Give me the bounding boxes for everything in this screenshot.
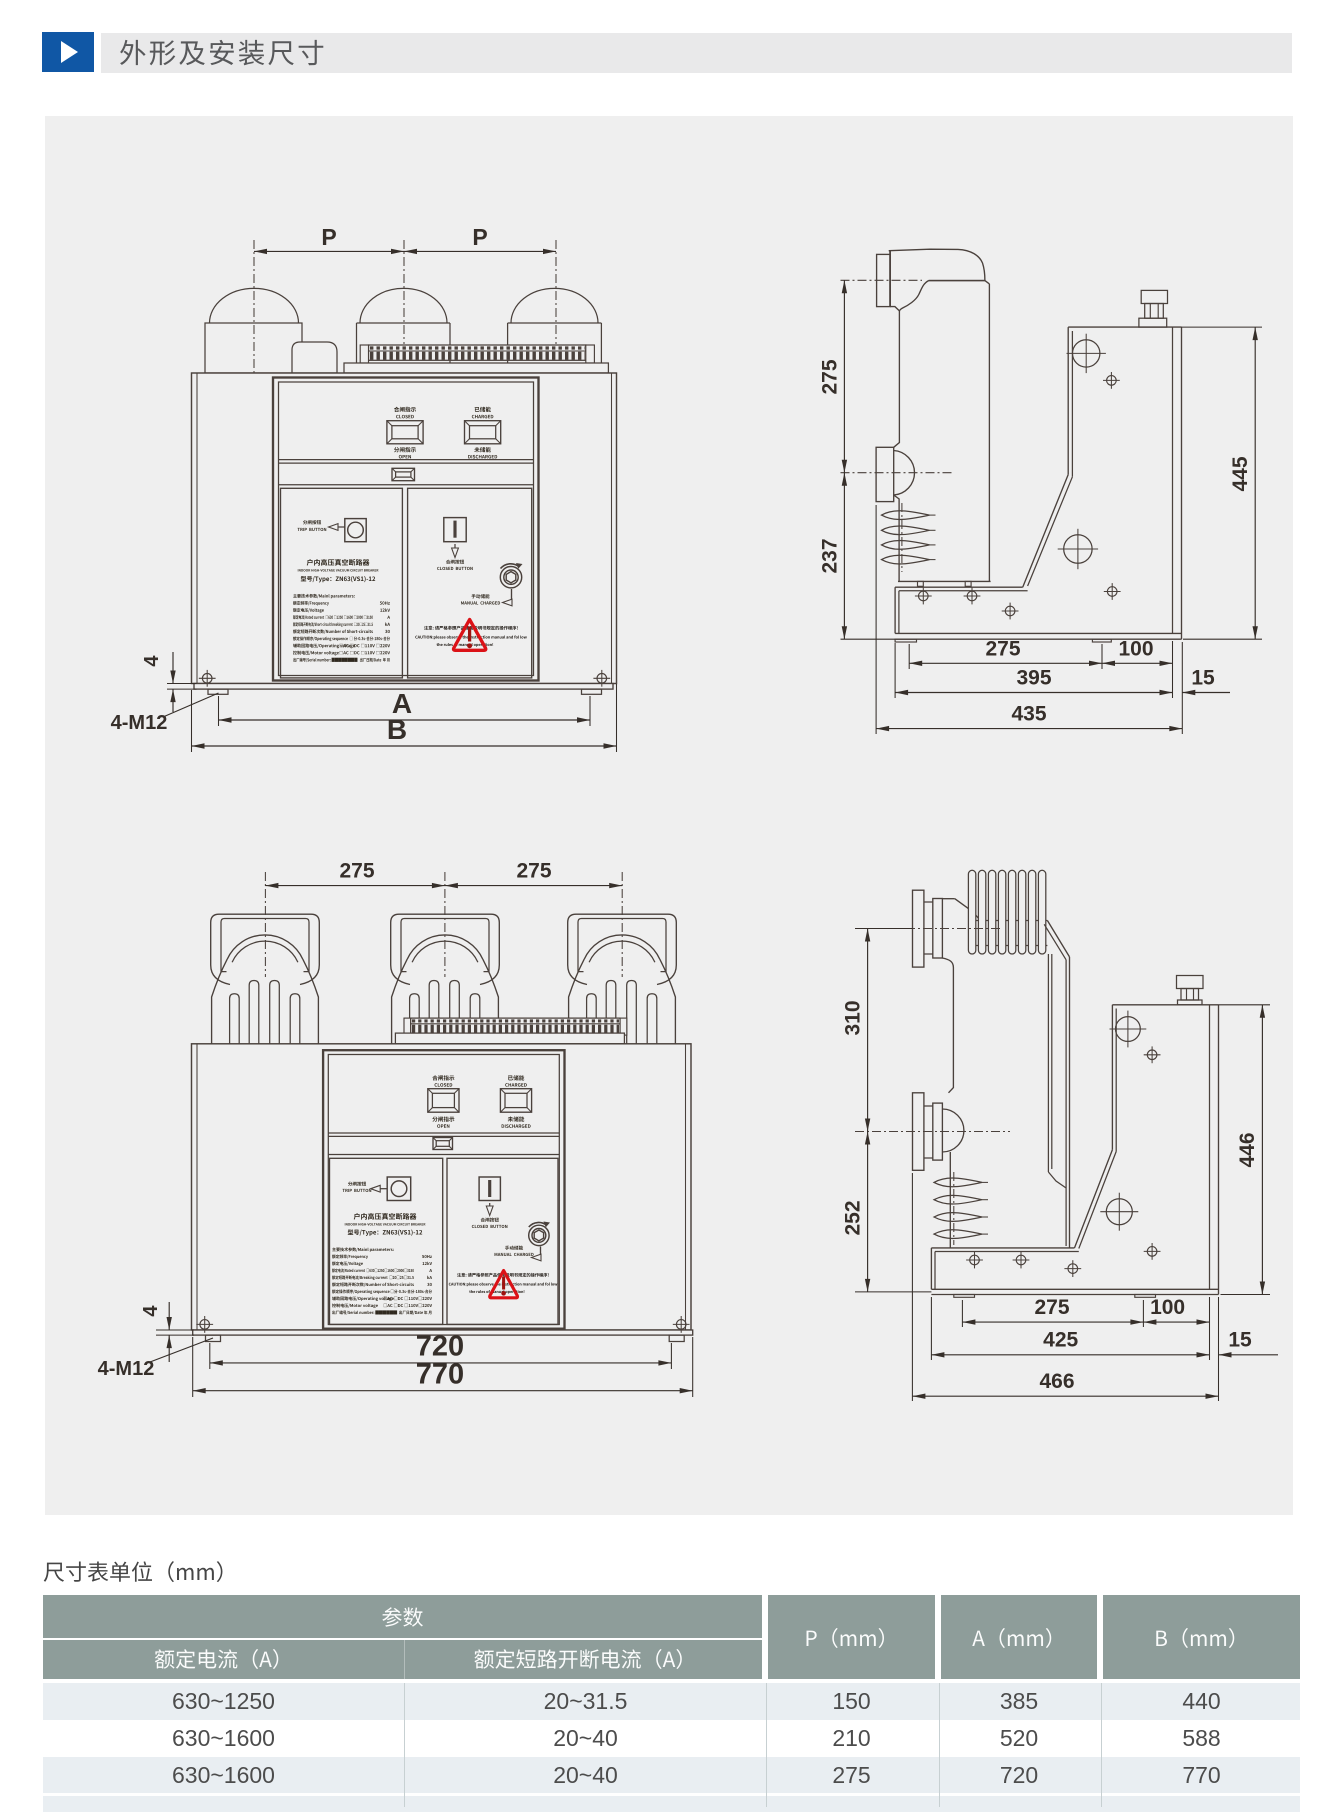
svg-text:395: 395 <box>1016 667 1051 690</box>
svg-text:4-M12: 4-M12 <box>98 1358 155 1380</box>
svg-text:466: 466 <box>1039 1370 1074 1393</box>
svg-text:275: 275 <box>985 638 1020 661</box>
svg-text:4: 4 <box>141 655 163 667</box>
svg-text:15: 15 <box>1191 667 1215 690</box>
svg-text:275: 275 <box>516 860 551 883</box>
svg-text:275: 275 <box>819 359 842 394</box>
svg-text:P: P <box>472 224 487 250</box>
svg-text:310: 310 <box>842 1000 865 1035</box>
svg-text:15: 15 <box>1228 1329 1252 1352</box>
svg-text:446: 446 <box>1236 1132 1259 1167</box>
svg-text:4: 4 <box>140 1305 162 1317</box>
svg-text:100: 100 <box>1118 638 1153 661</box>
svg-text:425: 425 <box>1043 1329 1078 1352</box>
svg-text:435: 435 <box>1011 703 1046 726</box>
svg-text:4-M12: 4-M12 <box>111 712 168 734</box>
svg-text:445: 445 <box>1229 456 1252 491</box>
svg-text:770: 770 <box>416 1359 464 1391</box>
svg-text:237: 237 <box>819 538 842 573</box>
svg-text:275: 275 <box>1034 1296 1069 1319</box>
svg-text:P: P <box>321 224 336 250</box>
svg-text:100: 100 <box>1150 1296 1185 1319</box>
svg-text:275: 275 <box>339 860 374 883</box>
svg-text:B: B <box>387 714 407 745</box>
svg-text:252: 252 <box>842 1200 865 1235</box>
